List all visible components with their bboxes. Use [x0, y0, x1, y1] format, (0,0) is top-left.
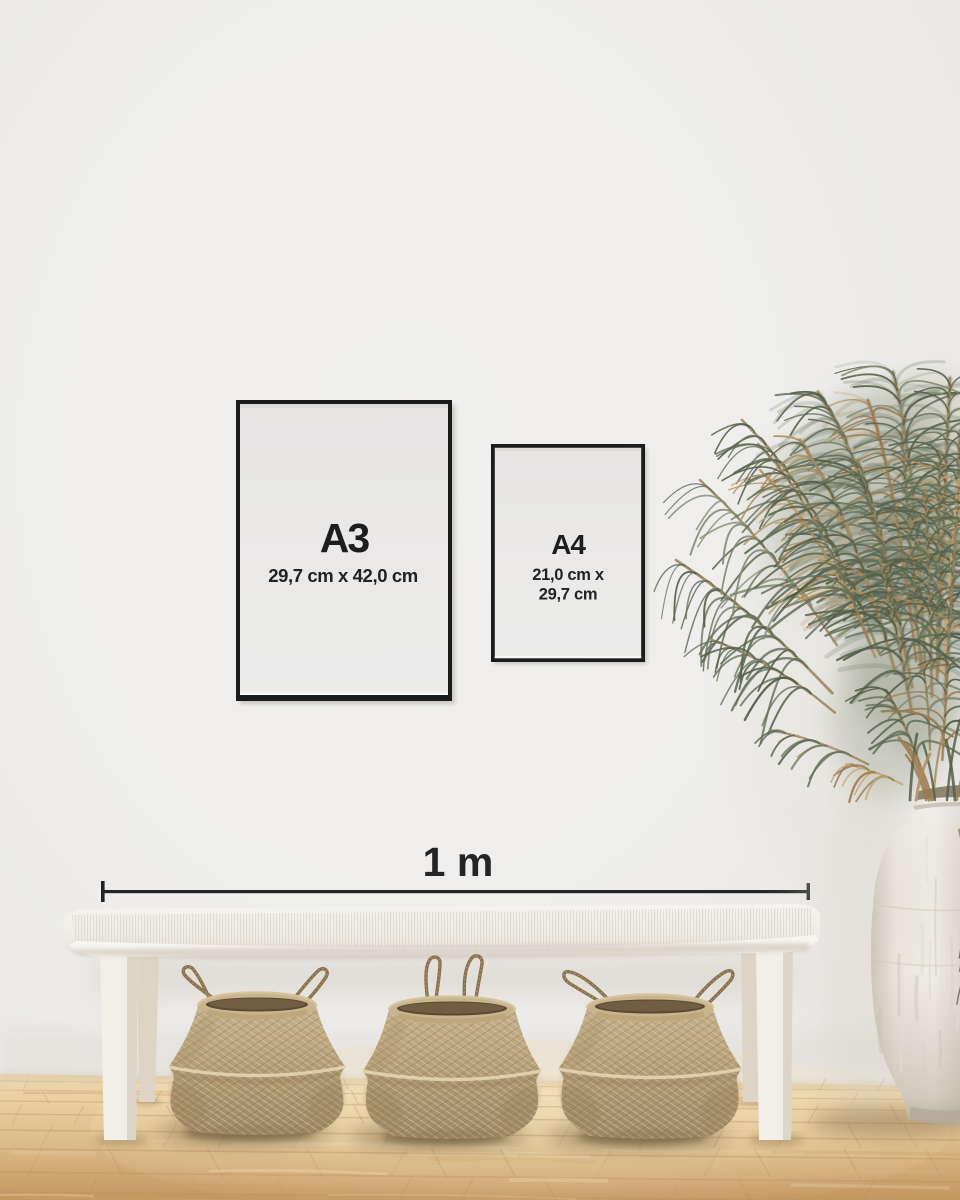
svg-text:21,0 cm x: 21,0 cm x [532, 566, 605, 584]
svg-text:A3: A3 [320, 515, 370, 561]
svg-text:1 m: 1 m [423, 839, 494, 885]
svg-text:A4: A4 [551, 529, 586, 560]
svg-text:29,7 cm x 42,0 cm: 29,7 cm x 42,0 cm [268, 565, 418, 586]
svg-text:29,7 cm: 29,7 cm [539, 586, 597, 604]
